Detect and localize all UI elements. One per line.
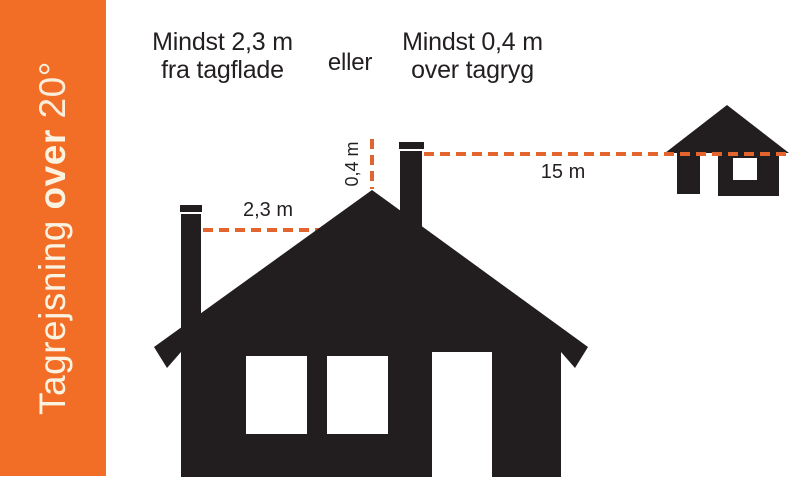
main-house-door <box>432 352 492 477</box>
heading-option-2: Mindst 0,4 m over tagryg <box>370 28 575 84</box>
heading-option-2-line-1: Mindst 0,4 m <box>370 28 575 56</box>
left-chimney-body <box>181 214 201 330</box>
sidebar-title-regular: Tagrejsning <box>32 220 73 415</box>
heading-option-1-line-1: Mindst 2,3 m <box>120 28 325 56</box>
measurement-label-roof-surface: 2,3 m <box>226 199 310 222</box>
ridge-chimney-body <box>400 151 422 266</box>
neighbor-house-roof <box>665 105 789 153</box>
chimney-height-infographic: Tagrejsning over 20° Mindst 2,3 m fra ta… <box>0 0 800 494</box>
measurement-label-distance: 15 m <box>523 161 603 184</box>
main-house-window-left <box>246 356 307 434</box>
left-chimney-cap <box>180 205 202 212</box>
sidebar-banner: Tagrejsning over 20° <box>0 0 106 476</box>
heading-option-2-line-2: over tagryg <box>370 56 575 84</box>
neighbor-house-left-wall <box>677 153 700 194</box>
sidebar-title: Tagrejsning over 20° <box>0 0 106 476</box>
neighbor-house-window <box>733 158 757 180</box>
main-house-window-right <box>327 356 388 434</box>
sidebar-title-degrees: 20° <box>32 61 73 118</box>
measurement-label-ridge: 0,4 m <box>342 134 362 194</box>
heading-option-1-line-2: fra tagflade <box>120 56 325 84</box>
heading-option-1: Mindst 2,3 m fra tagflade <box>120 28 325 84</box>
sidebar-title-bold: over <box>32 129 73 209</box>
ridge-chimney-cap <box>399 142 424 149</box>
